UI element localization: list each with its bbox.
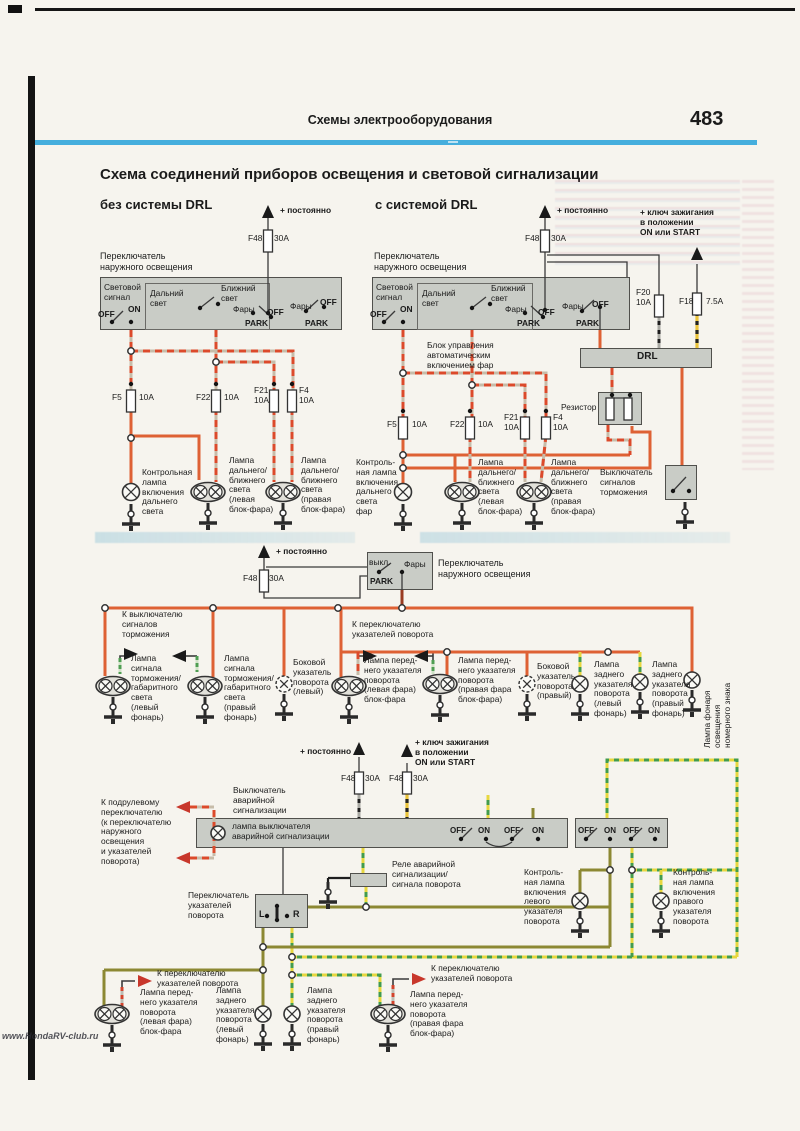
diagram-label: + постоянно <box>276 547 327 557</box>
diagram-label: Контроль- ная лампа включения левого ука… <box>524 868 566 927</box>
diagram-label: К выключателю сигналов торможения <box>122 610 183 639</box>
diagram-label: Блок управления автоматическим включение… <box>427 341 494 370</box>
terminal-dot <box>629 837 633 841</box>
junction-node <box>605 649 611 655</box>
fuse-symbol <box>521 417 530 439</box>
terminal-dot <box>608 837 612 841</box>
diagram-label: Фары <box>290 302 312 312</box>
terminal-dot <box>275 918 279 922</box>
terminal-dot <box>382 320 386 324</box>
diagram-label: Лампа дальнего/ ближнего света (правая б… <box>551 458 595 517</box>
diagram-label: Ближний свет <box>221 284 256 304</box>
diagram-label: PARK <box>517 319 540 329</box>
terminal-dot <box>272 382 276 386</box>
diagram-label: + ключ зажигания в положении ON или STAR… <box>415 738 489 767</box>
diagram-label: Выключатель сигналов торможения <box>600 468 653 497</box>
terminal-dot <box>275 904 279 908</box>
fuse-symbol <box>212 390 221 412</box>
junction-node <box>260 944 266 950</box>
diagram-label: ON <box>648 826 660 835</box>
diagram-label: OFF <box>623 826 639 835</box>
fuse-symbol <box>655 295 664 317</box>
ground-icon <box>340 697 358 724</box>
diagram-label: OFF <box>320 298 337 308</box>
ground-icon <box>525 503 543 530</box>
terminal-dot <box>216 302 220 306</box>
junction-node <box>400 370 406 376</box>
fuse-symbol <box>260 570 269 592</box>
diagram-label: F48 <box>525 234 539 244</box>
diagram-label: + ключ зажигания в положении ON или STAR… <box>640 208 714 237</box>
fuse-symbol <box>127 390 136 412</box>
diagram-label: ON <box>128 305 141 315</box>
terminal-dot <box>468 409 472 413</box>
diagram-label: F48 <box>341 774 355 784</box>
direction-arrow-icon <box>412 973 426 985</box>
diagram-label: ON <box>400 305 413 315</box>
direction-arrow-icon <box>262 205 274 218</box>
diagram-label: OFF <box>267 308 284 318</box>
diagram-label: F22 <box>450 420 464 430</box>
diagram-label: L <box>259 909 265 920</box>
diagram-label: Лампа сигнала торможения/ габаритного св… <box>131 654 181 723</box>
diagram-label: Переключатель наружного освещения <box>438 558 530 579</box>
junction-node <box>469 382 475 388</box>
diagram-label: OFF <box>98 310 115 320</box>
terminal-dot <box>129 320 133 324</box>
fuse-symbol <box>541 230 550 252</box>
manual-page: Схемы электрооборудования 483 Схема соед… <box>0 0 800 1131</box>
diagram-label: Фары <box>562 302 584 312</box>
diagram-label: Дальний свет <box>150 289 184 309</box>
direction-arrow-icon <box>176 801 190 813</box>
diagram-label: OFF <box>592 300 609 310</box>
fuse-symbol <box>466 417 475 439</box>
diagram-label: 10A <box>478 420 493 430</box>
diagram-label: PARK <box>305 319 328 329</box>
ground-icon <box>453 503 471 530</box>
diagram-label: Лампа дальнего/ ближнего света (правая б… <box>301 456 345 515</box>
fuse-symbol <box>288 390 297 412</box>
junction-node <box>444 649 450 655</box>
ground-icon <box>571 911 589 938</box>
diagram-label: Фары <box>505 305 527 315</box>
ground-icon <box>379 1025 397 1052</box>
diagram-label: + постоянно <box>557 206 608 216</box>
direction-arrow-icon <box>176 852 190 864</box>
terminal-dot <box>584 837 588 841</box>
terminal-dot <box>484 837 488 841</box>
terminal-dot <box>470 306 474 310</box>
diagram-label: F20 10A <box>636 288 651 308</box>
diagram-label: Дальний свет <box>422 289 456 309</box>
diagram-label: + постоянно <box>280 206 331 216</box>
diagram-label: Фары <box>404 560 426 570</box>
diagram-label: Лампа сигнала торможения/ габаритного св… <box>224 654 274 723</box>
direction-arrow-icon <box>691 247 703 260</box>
junction-node <box>260 967 266 973</box>
diagram-label: Боковой указатель поворота (левый) <box>293 658 331 697</box>
terminal-dot <box>400 570 404 574</box>
direction-arrow-icon <box>138 975 152 987</box>
ground-icon <box>431 695 449 722</box>
diagram-label: 30A <box>274 234 289 244</box>
terminal-dot <box>198 306 202 310</box>
terminal-dot <box>671 489 675 493</box>
diagram-label: F4 10A <box>553 413 568 433</box>
junction-node <box>629 867 635 873</box>
direction-arrow-icon <box>258 545 270 558</box>
ground-icon <box>103 1025 121 1052</box>
diagram-label: Лампа заднего указателя поворота (левый … <box>216 986 254 1045</box>
fuse-symbol <box>542 417 551 439</box>
diagram-label: Лампа перед- него указателя поворота (ле… <box>364 656 422 705</box>
diagram-label: F48 <box>248 234 262 244</box>
diagram-label: выкл. <box>369 558 390 568</box>
terminal-dot <box>129 382 133 386</box>
terminal-dot <box>523 409 527 413</box>
fuse-symbol <box>355 772 364 794</box>
junction-node <box>335 605 341 611</box>
diagram-label: Контрольная лампа включения дальнего све… <box>142 468 192 517</box>
ground-icon <box>275 694 293 721</box>
terminal-dot <box>687 489 691 493</box>
diagram-label: Контроль- ная лампа включения правого ук… <box>673 868 715 927</box>
terminal-dot <box>265 914 269 918</box>
resistor-elements <box>606 398 632 420</box>
terminal-dot <box>285 914 289 918</box>
diagram-label: DRL <box>637 351 658 363</box>
junction-node <box>128 435 134 441</box>
ground-icon <box>518 694 536 721</box>
ground-icon <box>283 1024 301 1051</box>
diagram-label: К переключателю указателей поворота <box>352 620 433 640</box>
direction-arrow-icon <box>539 205 551 218</box>
diagram-label: Ближний свет <box>491 284 526 304</box>
junction-node <box>128 348 134 354</box>
terminal-dot <box>610 393 614 397</box>
diagram-label: 10A <box>139 393 154 403</box>
terminal-dot <box>290 382 294 386</box>
diagram-label: 30A <box>365 774 380 784</box>
diagram-label: F5 <box>112 393 122 403</box>
diagram-label: 10A <box>224 393 239 403</box>
diagram-label: 30A <box>413 774 428 784</box>
ground-icon <box>104 697 122 724</box>
ground-icon <box>254 1024 272 1051</box>
junction-node <box>399 605 405 611</box>
junction-node <box>607 867 613 873</box>
diagram-label: К переключателю указателей поворота <box>431 964 512 984</box>
diagram-label: Лампа заднего указателя поворота (левый … <box>594 660 632 719</box>
ground-icon <box>199 503 217 530</box>
diagram-label: OFF <box>504 826 520 835</box>
diagram-label: Выключатель аварийной сигнализации <box>233 786 286 815</box>
diagram-label: OFF <box>450 826 466 835</box>
diagram-label: F21 10A <box>254 386 269 406</box>
ground-icon <box>652 911 670 938</box>
diagram-label: лампа выключателя аварийной сигнализации <box>232 822 329 842</box>
diagram-label: OFF <box>578 826 594 835</box>
diagram-label: Лампа дальнего/ ближнего света (левая бл… <box>478 458 522 517</box>
diagram-label: PARK <box>245 319 268 329</box>
ground-icon <box>274 503 292 530</box>
terminal-dot <box>544 409 548 413</box>
ground-icon <box>676 502 694 529</box>
direction-arrow-icon <box>401 744 413 757</box>
diagram-label: F18 <box>679 297 693 307</box>
junction-node <box>400 465 406 471</box>
diagram-label: Лампа перед- него указателя поворота (пр… <box>410 990 468 1039</box>
wiring-layer <box>0 0 800 1131</box>
diagram-label: Световой сигнал <box>104 283 141 303</box>
diagram-label: PARK <box>370 577 393 587</box>
diagram-label: Переключатель наружного освещения <box>374 251 466 272</box>
diagram-label: Лампа перед- него указателя поворота (ле… <box>140 988 198 1037</box>
terminal-dot <box>510 837 514 841</box>
ground-icon <box>631 692 649 719</box>
fuse-symbol <box>399 417 408 439</box>
fuse-symbol <box>270 390 279 412</box>
diagram-label: F4 10A <box>299 386 314 406</box>
diagram-label: Боковой указатель поворота (правый) <box>537 662 575 701</box>
terminal-dot <box>110 320 114 324</box>
terminal-dot <box>401 409 405 413</box>
junction-node <box>102 605 108 611</box>
diagram-label: Лампа фонаря освещения номерного знака <box>703 651 732 748</box>
diagram-label: Световой сигнал <box>376 283 413 303</box>
junction-node <box>363 904 369 910</box>
fuse-symbol <box>403 772 412 794</box>
fuse-symbol <box>264 230 273 252</box>
diagram-label: Реле аварийной сигнализации/ сигнала пов… <box>392 860 461 889</box>
diagram-label: Контроль- ная лампа включения дальнего с… <box>356 458 398 517</box>
diagram-label: Лампа заднего указателя поворота (правый… <box>307 986 345 1045</box>
junction-node <box>210 605 216 611</box>
diagram-label: К подрулевому переключателю (к переключа… <box>101 798 171 867</box>
ground-icon <box>196 697 214 724</box>
diagram-label: PARK <box>576 319 599 329</box>
diagram-label: Фары <box>233 305 255 315</box>
fuse-symbol <box>693 293 702 315</box>
terminal-dot <box>401 320 405 324</box>
diagram-label: Резистор <box>561 403 596 413</box>
red-striped-wires <box>131 330 630 858</box>
direction-arrow-icon <box>353 742 365 755</box>
diagram-label: 10A <box>412 420 427 430</box>
diagram-label: F5 <box>387 420 397 430</box>
ground-icon <box>122 504 140 531</box>
diagram-label: + постоянно <box>300 747 351 757</box>
diagram-label: Лампа перед- него указателя поворота (пр… <box>458 656 516 705</box>
terminal-dot <box>628 393 632 397</box>
diagram-label: F21 10A <box>504 413 519 433</box>
junction-node <box>400 452 406 458</box>
diagram-label: 7.5A <box>706 297 723 307</box>
terminal-dot <box>459 837 463 841</box>
diagram-label: ON <box>478 826 490 835</box>
ground-icon <box>319 882 337 909</box>
junction-node <box>289 972 295 978</box>
diagram-label: R <box>293 909 300 920</box>
diagram-label: Лампа дальнего/ ближнего света (левая бл… <box>229 456 273 515</box>
diagram-label: OFF <box>538 308 555 318</box>
diagram-label: Переключатель указателей поворота <box>188 891 249 920</box>
diagram-label: ON <box>532 826 544 835</box>
diagram-label: F22 <box>196 393 210 403</box>
diagram-label: OFF <box>370 310 387 320</box>
diagram-label: F48 <box>243 574 257 584</box>
terminal-dot <box>536 837 540 841</box>
terminal-dot <box>377 570 381 574</box>
diagram-label: Лампа заднего указателя поворота (правый… <box>652 660 690 719</box>
terminal-dot <box>653 837 657 841</box>
diagram-label: 30A <box>551 234 566 244</box>
diagram-label: Переключатель наружного освещения <box>100 251 192 272</box>
diagram-label: ON <box>604 826 616 835</box>
junction-node <box>213 359 219 365</box>
diagram-label: 30A <box>269 574 284 584</box>
junction-node <box>289 954 295 960</box>
terminal-dot <box>214 382 218 386</box>
diagram-label: F48 <box>389 774 403 784</box>
